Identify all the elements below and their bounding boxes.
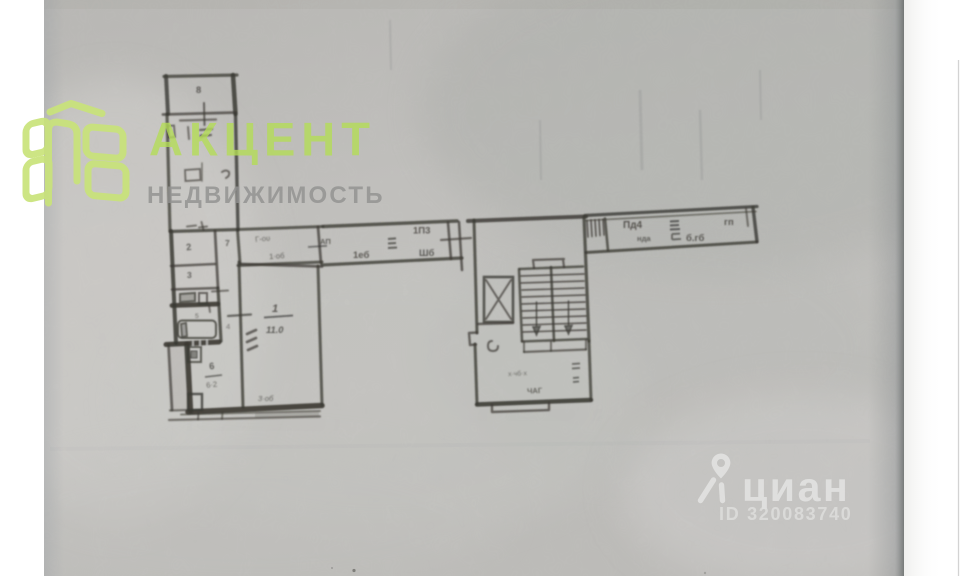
svg-text:Шб: Шб (419, 248, 435, 259)
svg-text:гп: гп (724, 217, 734, 228)
svg-text:АП: АП (320, 237, 331, 246)
svg-text:нда: нда (637, 234, 651, 243)
svg-text:6·2: 6·2 (206, 380, 218, 390)
svg-text:б.гб: б.гб (686, 233, 704, 244)
svg-text:АКЦЕНТ: АКЦЕНТ (149, 113, 376, 166)
svg-text:11.0: 11.0 (266, 325, 284, 335)
svg-text:1еб: 1еб (353, 250, 369, 261)
svg-text:5: 5 (195, 313, 199, 320)
svg-text:х·чб·х: х·чб·х (508, 369, 528, 378)
svg-text:4: 4 (226, 322, 230, 331)
svg-text:1·об: 1·об (269, 251, 286, 261)
svg-text:1: 1 (272, 303, 278, 315)
svg-text:Пд4: Пд4 (623, 220, 643, 231)
svg-text:1П3: 1П3 (413, 226, 430, 237)
svg-text:3·об: 3·об (258, 394, 274, 403)
svg-text:7: 7 (225, 238, 230, 248)
svg-text:ID 320083740: ID 320083740 (719, 504, 853, 524)
svg-text:Г-оʋ: Г-оʋ (255, 234, 271, 244)
svg-text:2: 2 (186, 242, 192, 252)
svg-text:НЕДВИЖИМОСТЬ: НЕДВИЖИМОСТЬ (147, 182, 385, 209)
svg-text:8: 8 (196, 85, 201, 95)
svg-text:6: 6 (209, 361, 215, 371)
svg-text:3: 3 (187, 270, 192, 280)
svg-text:ЧАГ: ЧАГ (527, 386, 543, 396)
